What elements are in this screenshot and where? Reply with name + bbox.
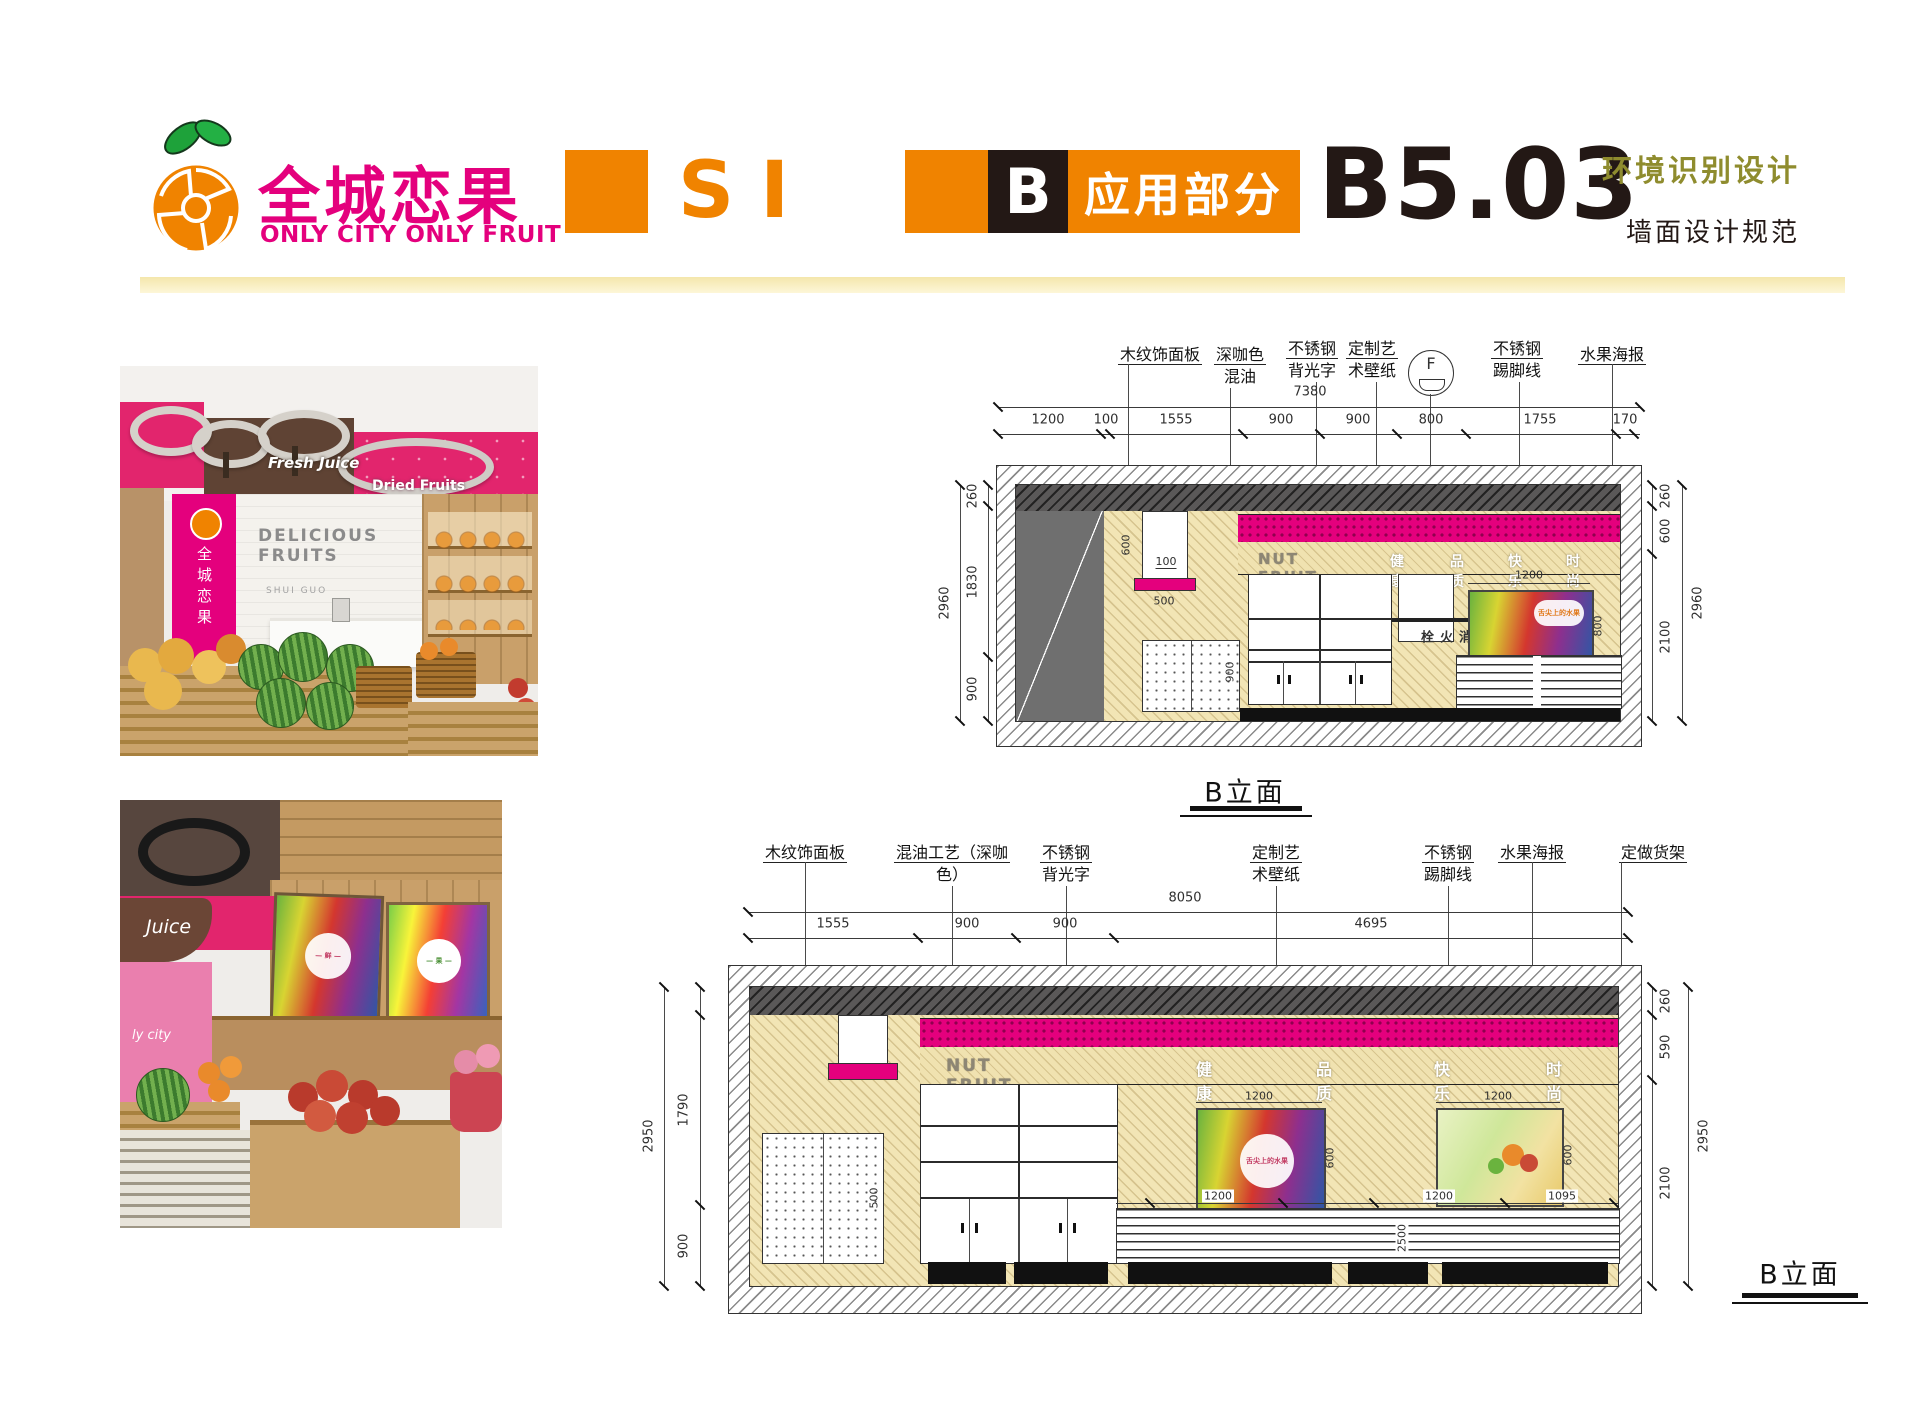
e1-magenta-band <box>1238 514 1620 544</box>
chandelier-wheel-2 <box>192 420 270 468</box>
si-mark: SI <box>678 146 815 236</box>
e1-seg5: 800 <box>1419 413 1444 428</box>
e1-shelving <box>1248 574 1392 705</box>
orange-c <box>208 1080 230 1102</box>
apple-1 <box>508 678 528 698</box>
e2-seg2: 900 <box>1053 917 1078 932</box>
cab-div <box>1319 661 1321 704</box>
e1-title-underline-thick <box>1190 806 1302 811</box>
section-letter: B <box>1004 155 1051 228</box>
e1-hydrant-text: 消火栓 <box>1416 630 1473 647</box>
handle <box>1073 1223 1076 1233</box>
e2-shelf-dim-1: 1200 <box>1423 1190 1455 1203</box>
peg-divider <box>823 1134 824 1263</box>
e2-word-1: 品质 <box>1316 1056 1332 1104</box>
e2-right-0: 260 <box>1659 989 1674 1014</box>
e2-shelf-dim-0: 1200 <box>1202 1190 1234 1203</box>
oranges-1 <box>420 642 438 660</box>
poster2-circle: — 果 — <box>417 939 461 983</box>
e2-left-0: 1790 <box>677 1093 692 1126</box>
base-strip <box>928 1262 1006 1284</box>
e1-ceiling-band <box>1016 485 1620 511</box>
e1-ann-2: 不锈钢背光字 <box>1286 338 1338 381</box>
cab-div <box>1067 1199 1068 1263</box>
e2-right-outer-line <box>1688 987 1689 1286</box>
melon-2 <box>158 638 194 674</box>
photo-text-fresh-juice: Fresh Juice <box>268 454 359 472</box>
e1-poster-h: 800 <box>1592 616 1605 637</box>
e2-ann-3: 定制艺术壁纸 <box>1250 842 1302 885</box>
section-title: 应用部分 <box>1084 159 1284 225</box>
e1-peg-dim: 900 <box>1224 662 1237 683</box>
e2-title-underline-thick <box>1742 1293 1858 1298</box>
page: { "header": { "brand_cn": "全城恋果", "brand… <box>0 0 1920 1415</box>
e2-dim-total: 8050 <box>1168 891 1201 906</box>
e2-left-outer-line <box>664 987 665 1286</box>
e2-poster2-h: 600 <box>1562 1145 1575 1166</box>
cab-div <box>969 1199 970 1263</box>
e1-seg1: 100 <box>1094 413 1119 428</box>
apple-r6 <box>370 1096 400 1126</box>
e2-shelf-v: 2500 <box>1396 1222 1409 1254</box>
e2-ann-5: 水果海报 <box>1498 842 1566 864</box>
handle <box>961 1223 964 1233</box>
e1-recess-h: 600 <box>1120 535 1133 556</box>
e1-shelf-w: 500 <box>1154 595 1175 608</box>
render-photo-bottom: Juice ly city — 鲜 — — 果 — <box>120 800 502 1228</box>
e1-right-outer-line <box>1682 485 1683 721</box>
watermelon-2 <box>278 632 328 682</box>
handle <box>1277 675 1280 684</box>
e1-recess <box>1142 511 1188 580</box>
e2-word-0: 健康 <box>1196 1056 1212 1104</box>
e1-left-total: 2960 <box>938 586 953 619</box>
watermelon-4 <box>256 678 306 728</box>
e1-left-inner-line <box>988 485 989 721</box>
e1-slat-cabinet <box>1456 655 1622 709</box>
e2-slat-dimline <box>1116 1203 1618 1204</box>
base-strip <box>1348 1262 1428 1284</box>
section-title-box: 应用部分 <box>1068 150 1300 233</box>
e1-poster-caption: 舌尖上的水果 <box>1534 600 1584 626</box>
e1-poster-dimline <box>1468 583 1590 584</box>
e2-ann-6: 定做货架 <box>1619 842 1687 864</box>
juice-sign: Juice <box>120 898 212 962</box>
e1-right-2: 2100 <box>1659 620 1674 653</box>
base-strip <box>1128 1262 1332 1284</box>
e2-right-2: 2100 <box>1659 1166 1674 1199</box>
basket-1 <box>356 666 412 708</box>
handle <box>1349 675 1352 684</box>
header-separator <box>140 277 1845 293</box>
base-strip <box>1014 1262 1108 1284</box>
e2-seg3: 4695 <box>1354 917 1387 932</box>
e1-word-3: 时尚 <box>1566 551 1580 591</box>
header-subtitle-1: 环境识别设计 <box>1560 146 1800 190</box>
e1-right-1: 600 <box>1659 519 1674 544</box>
red-bucket <box>450 1072 502 1132</box>
wall-text-delicious: DELICIOUS <box>258 526 378 546</box>
e2-right-1: 590 <box>1659 1035 1674 1060</box>
apple-r5 <box>336 1102 368 1134</box>
e1-seg6: 1755 <box>1523 413 1556 428</box>
e1-right-0: 260 <box>1659 484 1674 509</box>
flower-2 <box>476 1044 500 1068</box>
e1-ann-1: 深咖色混油 <box>1214 344 1266 387</box>
shelf-divider <box>1319 575 1321 661</box>
e1-left-0: 260 <box>966 484 981 509</box>
handle <box>1059 1223 1062 1233</box>
apple-table <box>250 1120 460 1228</box>
oranges-2 <box>440 638 458 656</box>
e1-poster-w: 1200 <box>1515 569 1543 582</box>
e1-seg4: 900 <box>1346 413 1371 428</box>
e2-right-inner-line <box>1652 987 1653 1286</box>
e2-recess <box>838 1015 888 1065</box>
e2-slat-run <box>1116 1208 1620 1264</box>
fan-letter: F <box>1426 354 1435 373</box>
apple-r4 <box>304 1100 336 1132</box>
fruit-bin-right <box>408 702 538 756</box>
e1-ann-4: 不锈钢踢脚线 <box>1491 338 1543 381</box>
pendant-bulb-1 <box>223 452 229 478</box>
e1-title: B立面 <box>1204 771 1286 810</box>
e2-peg-dim: 500 <box>868 1188 881 1209</box>
e1-ann-5: 水果海报 <box>1578 344 1646 366</box>
e1-ann-3: 定制艺术壁纸 <box>1346 338 1398 381</box>
e2-word-3: 时尚 <box>1546 1056 1562 1104</box>
handle <box>975 1223 978 1233</box>
base-strip <box>1442 1262 1608 1284</box>
ceiling-ring-lamp <box>138 818 250 886</box>
e1-left-2: 900 <box>966 677 981 702</box>
e2-poster1-w: 1200 <box>1245 1090 1273 1103</box>
slat-base <box>120 1130 270 1228</box>
e2-left-1: 900 <box>677 1234 692 1259</box>
poster1-circle: — 鲜 — <box>304 932 352 980</box>
header-subtitle-2: 墙面设计规范 <box>1560 212 1800 249</box>
section-letter-box: B <box>988 150 1068 233</box>
poster-fruit-2 <box>1520 1154 1538 1172</box>
e2-shelving <box>920 1084 1118 1264</box>
slat-gap <box>1533 656 1541 708</box>
e2-word-2: 快乐 <box>1434 1056 1450 1104</box>
e1-recess-gap: 100 <box>1156 555 1177 569</box>
e1-title-underline-thin <box>1180 815 1312 817</box>
apple-r2 <box>316 1070 348 1102</box>
handle <box>1288 675 1291 684</box>
wall-text-fruits: FRUITS <box>258 546 339 566</box>
pos-terminal <box>332 598 350 622</box>
e2-left-total: 2950 <box>642 1119 657 1152</box>
e2-right-total: 2950 <box>1697 1119 1712 1152</box>
e2-ann-4: 不锈钢踢脚线 <box>1422 842 1474 885</box>
header: 全城恋果 ONLY CITY ONLY FRUIT SI B 应用部分 B5.0… <box>0 0 1920 300</box>
e2-poster1-h: 600 <box>1324 1148 1337 1169</box>
e2-left-inner-line <box>700 987 701 1286</box>
e2-shelf-dim-2: 1095 <box>1546 1190 1578 1203</box>
peg-divider <box>1191 641 1192 711</box>
e1-ann-0: 木纹饰面板 <box>1118 344 1202 366</box>
watermelon-5 <box>306 682 354 730</box>
e1-seg3: 900 <box>1269 413 1294 428</box>
e1-dim-total: 7380 <box>1293 385 1326 400</box>
e2-pegboard <box>762 1133 884 1264</box>
orange-square-2 <box>905 150 988 233</box>
e2-poster1-caption: 舌尖上的水果 <box>1240 1134 1294 1188</box>
e2-title-underline-thin <box>1732 1302 1868 1304</box>
orange-square-1 <box>565 150 648 233</box>
e1-gray-section <box>1016 511 1104 721</box>
e2-seg0: 1555 <box>816 917 849 932</box>
e1-pink-shelf <box>1134 578 1196 591</box>
ceiling-wood <box>280 800 502 884</box>
e2-seg1: 900 <box>955 917 980 932</box>
fan-symbol-icon: F <box>1408 350 1454 396</box>
e1-seg2: 1555 <box>1159 413 1192 428</box>
e2-poster-2 <box>1436 1108 1564 1207</box>
e2-dim-seg-line <box>748 938 1628 939</box>
wall-poster-2: — 果 — <box>386 902 490 1024</box>
e1-left-1: 1830 <box>966 565 981 598</box>
shelf-packs <box>432 518 528 630</box>
wall-poster-1: — 鲜 — <box>270 892 384 1024</box>
e2-sign-band <box>920 1047 1618 1085</box>
e2-magenta-band <box>920 1018 1618 1049</box>
shelf-divider <box>1018 1085 1020 1197</box>
brand-tagline: ONLY CITY ONLY FRUIT <box>260 222 561 248</box>
e1-hydrant-bar <box>1392 618 1478 622</box>
e1-skirting <box>1240 708 1620 721</box>
pink-wall-text: ly city <box>132 1028 171 1043</box>
e1-seg7: 170 <box>1613 413 1638 428</box>
flower-1 <box>454 1050 478 1074</box>
e1-right-total: 2960 <box>1691 586 1706 619</box>
e2-pink-shelf <box>828 1063 898 1080</box>
e2-title: B立面 <box>1759 1253 1841 1292</box>
e2-ann-2: 不锈钢背光字 <box>1040 842 1092 885</box>
e1-seg0: 1200 <box>1031 413 1064 428</box>
e2-ann-0: 木纹饰面板 <box>763 842 847 864</box>
e1-left-outer-line <box>960 485 961 721</box>
e2-poster2-w: 1200 <box>1484 1090 1512 1103</box>
wall-text-shuiguo: SHUI GUO <box>266 586 327 596</box>
e2-dim-total-line <box>748 912 1628 913</box>
watermelon <box>136 1068 190 1122</box>
photo-text-dried-fruits: Dried Fruits <box>372 478 465 494</box>
brand-logo-icon <box>143 108 261 268</box>
orange-b <box>220 1056 242 1078</box>
column-logo-icon <box>190 508 222 540</box>
e2-ceiling-band <box>750 987 1618 1015</box>
juice-text: Juice <box>146 916 191 938</box>
cab-div <box>1355 661 1356 704</box>
cab-div <box>1018 1199 1020 1263</box>
cab-div <box>1283 661 1284 704</box>
poster-fruit-3 <box>1488 1158 1504 1174</box>
column-brand-text: 全城恋果 <box>194 546 215 630</box>
e1-right-inner-line <box>1652 485 1653 721</box>
melon-4 <box>144 672 182 710</box>
e2-ann-1: 混油工艺（深咖色） <box>894 842 1010 885</box>
e1-dim-total-line <box>998 407 1640 408</box>
render-photo-top: Fresh Juice Dried Fruits 全城恋果 DELICIOUS … <box>120 366 538 756</box>
handle <box>1360 675 1363 684</box>
